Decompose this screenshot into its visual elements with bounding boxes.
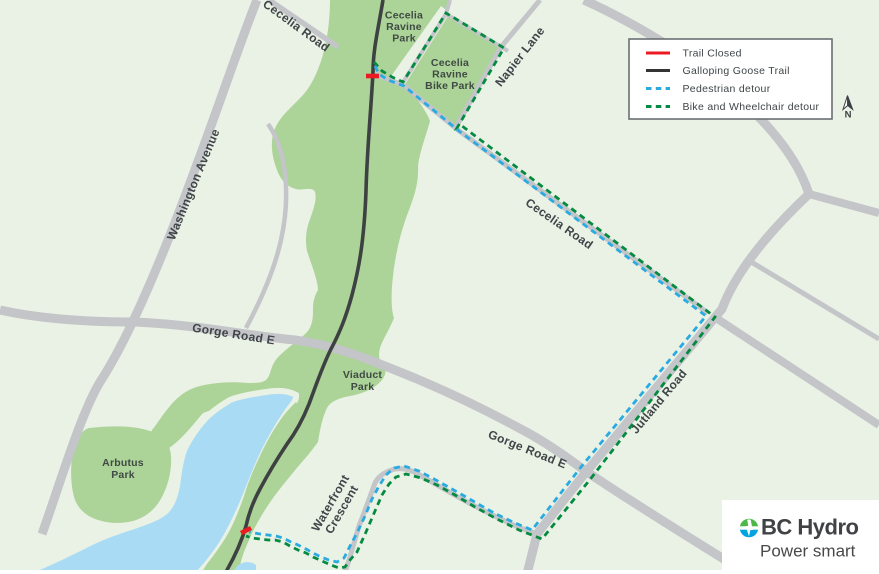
svg-text:Trail Closed: Trail Closed	[683, 48, 742, 60]
svg-text:Bike and Wheelchair detour: Bike and Wheelchair detour	[683, 101, 820, 113]
svg-text:Power smart: Power smart	[760, 542, 856, 561]
svg-text:CeceliaRavineBike Park: CeceliaRavineBike Park	[425, 57, 475, 92]
svg-text:Pedestrian detour: Pedestrian detour	[683, 83, 771, 95]
svg-text:BC Hydro: BC Hydro	[761, 515, 859, 540]
svg-text:Galloping Goose Trail: Galloping Goose Trail	[683, 65, 790, 77]
svg-text:N: N	[845, 110, 852, 121]
